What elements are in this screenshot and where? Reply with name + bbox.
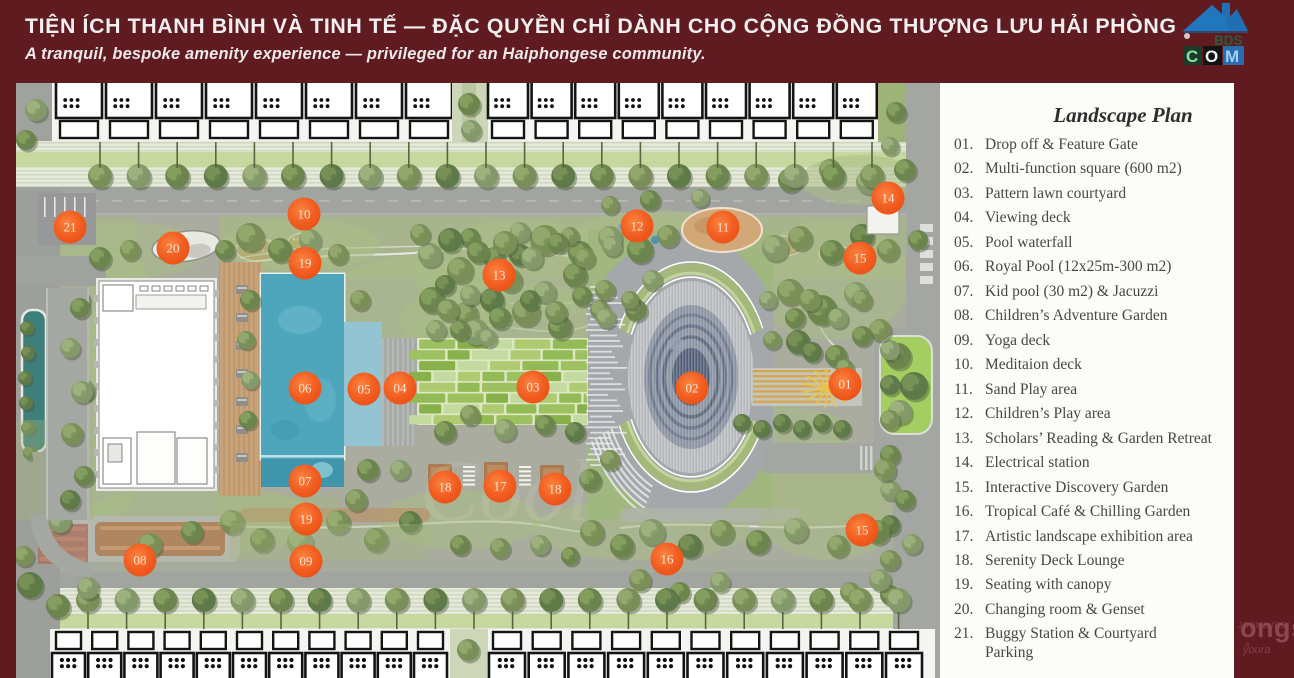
svg-text:11: 11 bbox=[717, 220, 730, 235]
svg-text:BDS: BDS bbox=[1214, 33, 1243, 48]
svg-text:14: 14 bbox=[882, 191, 896, 206]
svg-text:09: 09 bbox=[300, 554, 313, 569]
svg-text:O: O bbox=[1205, 47, 1218, 66]
svg-text:18: 18 bbox=[439, 480, 452, 495]
svg-text:18: 18 bbox=[549, 482, 562, 497]
svg-text:02: 02 bbox=[686, 381, 699, 396]
svg-text:05: 05 bbox=[358, 382, 371, 397]
svg-text:04: 04 bbox=[394, 381, 408, 396]
svg-text:19: 19 bbox=[300, 512, 313, 527]
svg-text:15: 15 bbox=[854, 251, 867, 266]
svg-text:17: 17 bbox=[494, 479, 508, 494]
svg-text:01: 01 bbox=[839, 377, 852, 392]
svg-text:19: 19 bbox=[299, 256, 312, 271]
svg-text:13: 13 bbox=[493, 268, 506, 283]
svg-text:10: 10 bbox=[298, 207, 311, 222]
svg-text:16: 16 bbox=[661, 552, 675, 567]
svg-text:15: 15 bbox=[856, 523, 869, 538]
svg-text:03: 03 bbox=[527, 380, 540, 395]
svg-text:07: 07 bbox=[299, 474, 313, 489]
svg-text:06: 06 bbox=[299, 381, 313, 396]
svg-text:M: M bbox=[1225, 47, 1239, 66]
svg-text:C: C bbox=[1186, 47, 1198, 66]
svg-text:08: 08 bbox=[134, 553, 147, 568]
svg-text:20: 20 bbox=[167, 241, 180, 256]
svg-text:12: 12 bbox=[631, 219, 644, 234]
svg-text:21: 21 bbox=[64, 220, 77, 235]
